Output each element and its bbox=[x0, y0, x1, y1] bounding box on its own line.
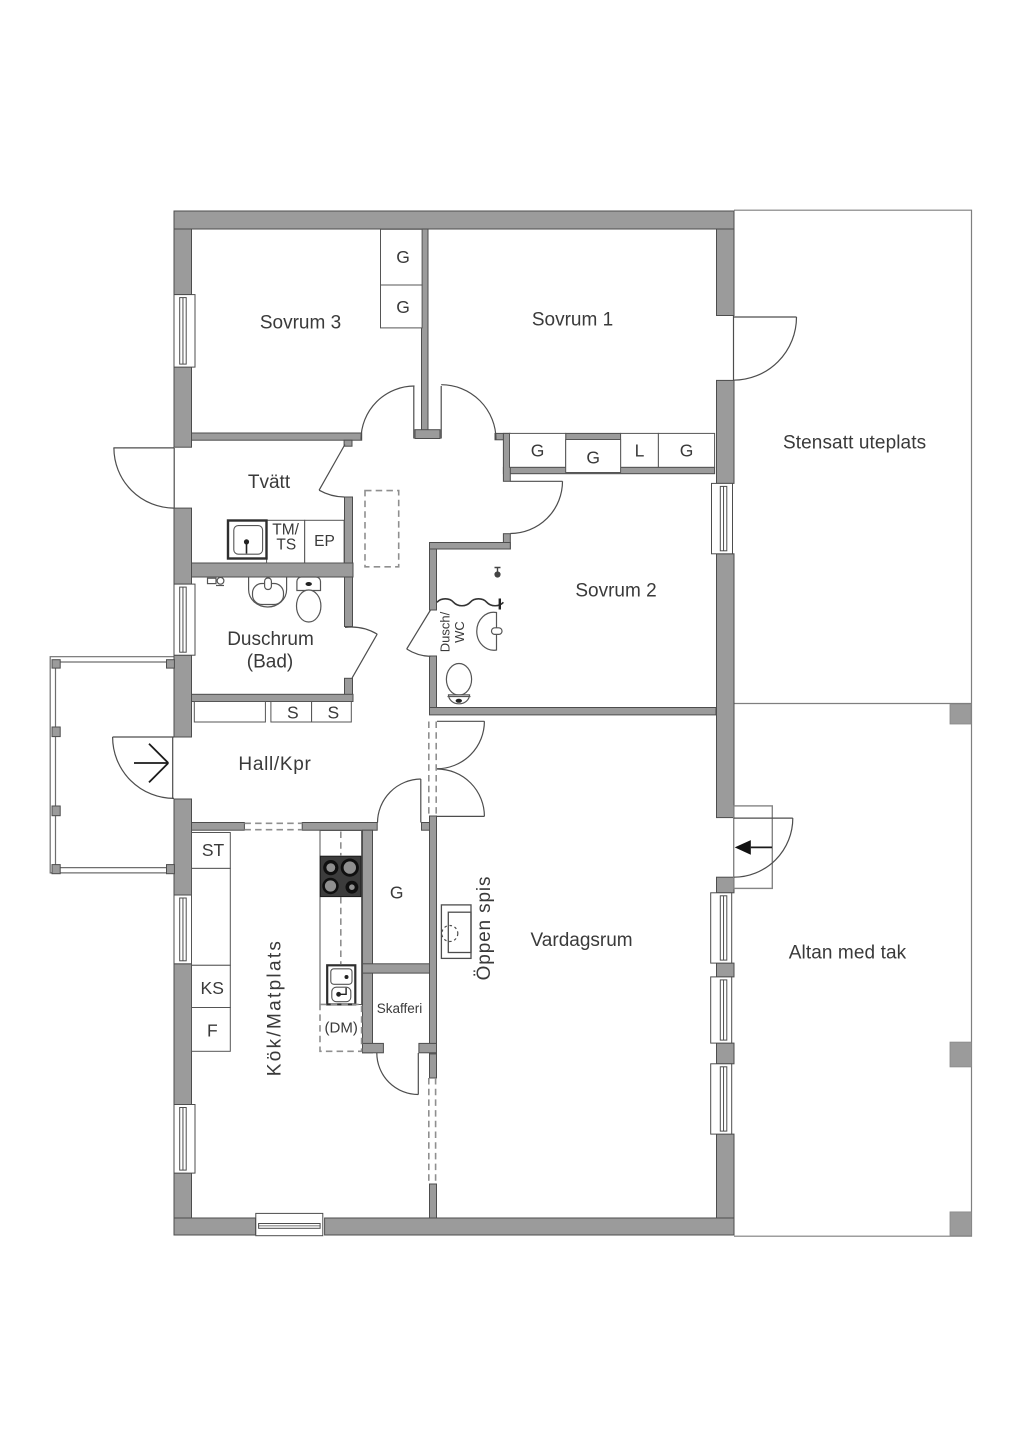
svg-text:G: G bbox=[531, 440, 545, 460]
svg-text:KS: KS bbox=[201, 978, 224, 998]
svg-text:S: S bbox=[328, 702, 340, 722]
svg-text:L: L bbox=[635, 440, 645, 460]
svg-text:(Bad): (Bad) bbox=[247, 651, 293, 672]
svg-text:Vardagsrum: Vardagsrum bbox=[531, 930, 633, 951]
svg-text:G: G bbox=[680, 440, 694, 460]
svg-text:Kök/Matplats: Kök/Matplats bbox=[265, 939, 286, 1076]
svg-text:Sovrum 3: Sovrum 3 bbox=[260, 313, 341, 334]
svg-text:(DM): (DM) bbox=[325, 1020, 358, 1037]
svg-text:Altan med tak: Altan med tak bbox=[789, 943, 907, 964]
svg-text:Sovrum 1: Sovrum 1 bbox=[532, 310, 613, 331]
svg-text:Skafferi: Skafferi bbox=[377, 1001, 423, 1016]
svg-text:G: G bbox=[396, 247, 410, 267]
svg-text:TS: TS bbox=[276, 537, 296, 554]
svg-text:Hall/Kpr: Hall/Kpr bbox=[238, 754, 311, 775]
svg-text:WC: WC bbox=[452, 621, 467, 643]
svg-text:S: S bbox=[287, 702, 299, 722]
svg-text:Sovrum 2: Sovrum 2 bbox=[575, 581, 656, 602]
svg-text:Öppen spis: Öppen spis bbox=[474, 876, 495, 981]
svg-text:F: F bbox=[207, 1020, 218, 1040]
svg-text:G: G bbox=[586, 447, 600, 467]
svg-text:G: G bbox=[390, 882, 404, 902]
svg-text:Duschrum: Duschrum bbox=[227, 629, 314, 650]
svg-text:EP: EP bbox=[314, 533, 335, 550]
svg-text:Dusch/: Dusch/ bbox=[438, 611, 453, 652]
svg-text:G: G bbox=[396, 297, 410, 317]
svg-text:Stensatt uteplats: Stensatt uteplats bbox=[783, 433, 926, 454]
svg-text:ST: ST bbox=[202, 840, 225, 860]
svg-text:Tvätt: Tvätt bbox=[248, 472, 291, 493]
